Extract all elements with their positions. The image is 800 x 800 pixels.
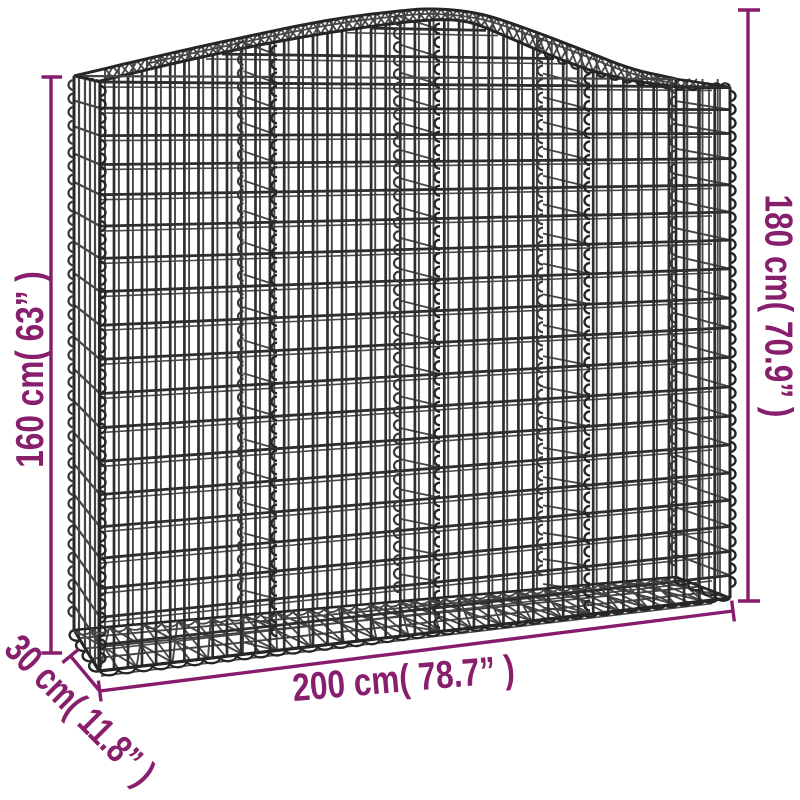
svg-text:160 cm( 63” ): 160 cm( 63” )	[8, 271, 52, 468]
svg-text:200 cm( 78.7” ): 200 cm( 78.7” )	[291, 647, 517, 710]
svg-text:180 cm( 70.9” ): 180 cm( 70.9” )	[757, 195, 800, 418]
